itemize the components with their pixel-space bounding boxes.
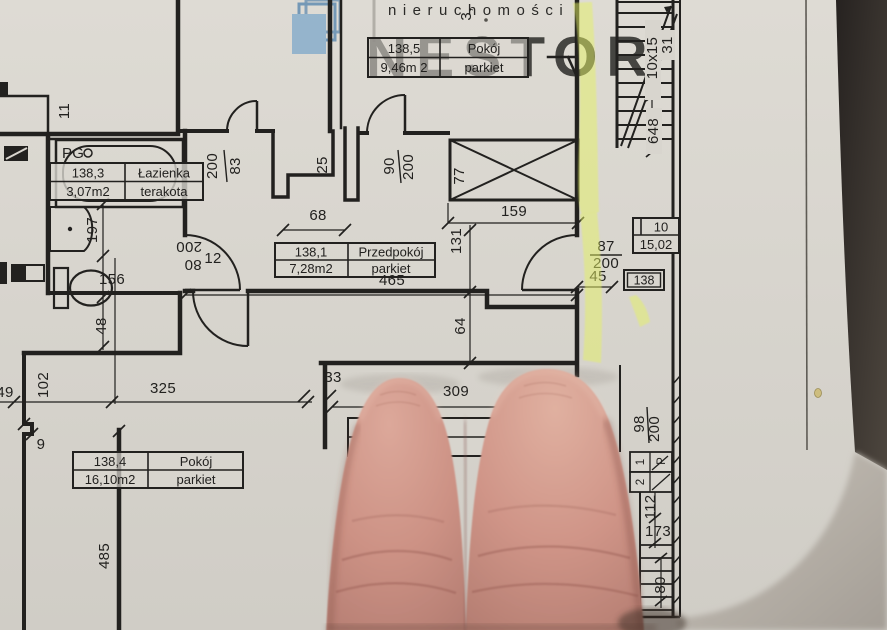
stair-tread: 31 (659, 36, 676, 53)
dim-33: 33 (324, 369, 341, 386)
dim-9: 9 (37, 436, 46, 453)
dim-102: 102 (35, 372, 52, 398)
dim-159: 159 (501, 203, 527, 220)
room4-number: 138,4 (94, 454, 127, 469)
dim-3top: 3, (458, 7, 475, 20)
logo-square-icon (292, 14, 326, 54)
bath-name: Łazienka (138, 166, 191, 181)
bath-area: 3,07m2 (66, 184, 109, 199)
flight-p: P (656, 457, 668, 465)
dim-112: 112 (642, 495, 659, 520)
room-table-138-3: 138,3 Łazienka 3,07m2 terakota (50, 163, 203, 200)
flight-2: 2 (635, 479, 647, 485)
bath-number: 138,3 (72, 166, 105, 181)
dim-465: 465 (379, 272, 405, 289)
bath-floor: terakota (141, 184, 189, 199)
unit-number: 138 (634, 274, 655, 288)
dim-131: 131 (448, 228, 465, 254)
dim-48: 48 (93, 317, 110, 334)
stair-run: 648 (645, 118, 662, 144)
room4-area: 16,10m2 (85, 472, 136, 487)
room4-name: Pokój (180, 454, 213, 469)
door-83-h: 200 (204, 153, 221, 179)
flight-1: 1 (635, 459, 647, 465)
ink-speck (484, 18, 488, 22)
dim-25: 25 (314, 156, 331, 173)
room5-floor: parkiet (464, 60, 503, 75)
hall-name: Przedpokój (358, 245, 423, 260)
plan-border (806, 0, 807, 450)
dim-156: 156 (99, 271, 125, 288)
room5-area: 9,46m 2 (381, 60, 428, 75)
dim-80: 80 (652, 576, 669, 593)
door-90-h: 200 (400, 154, 417, 180)
dim-197: 197 (84, 217, 101, 243)
corridor-table: 10 15,02 (633, 218, 679, 253)
dim-173: 173 (645, 523, 671, 540)
corridor-area: 15,02 (640, 237, 673, 252)
plan-canvas: nieruchomości NESTOR (0, 0, 887, 630)
dim-485: 485 (96, 543, 113, 569)
hall-number: 138,1 (295, 245, 328, 260)
room-table-138-4: 138,4 Pokój 16,10m2 parkiet (73, 452, 243, 488)
dim-64: 64 (452, 317, 469, 334)
hall-area: 7,28m2 (289, 261, 332, 276)
room-table-138-1: 138,1 Przedpokój 7,28m2 parkiet (275, 243, 435, 277)
unit-number-plate: 138 (624, 270, 664, 290)
door-80-h: 200 (176, 238, 202, 255)
dim-325: 325 (150, 380, 176, 397)
dim-68: 68 (309, 207, 326, 224)
bottom-seam-shadow (326, 624, 656, 630)
room5-number: 138,5 (388, 41, 421, 56)
door-83-w: 83 (227, 157, 244, 174)
door-80-w: 80 (184, 256, 201, 273)
room-table-138-5: 138,5 Pokój 9,46m 2 parkiet (368, 38, 528, 77)
door-98-h: 200 (646, 416, 663, 442)
door-90-w: 90 (381, 157, 398, 174)
dim-49: 49 (0, 384, 14, 401)
room5-name: Pokój (468, 41, 501, 56)
crumb (815, 389, 822, 398)
floor-plan-photo: nieruchomości NESTOR (0, 0, 887, 630)
room4-floor: parkiet (176, 472, 215, 487)
pg-label: PG (62, 145, 84, 162)
dim-11: 11 (56, 103, 73, 119)
corridor-number: 10 (654, 220, 668, 235)
dim-77: 77 (451, 167, 468, 184)
brand-tagline: nieruchomości (388, 2, 569, 19)
dim-12: 12 (204, 250, 221, 267)
flight-markers: 1 P 2 (630, 452, 672, 492)
